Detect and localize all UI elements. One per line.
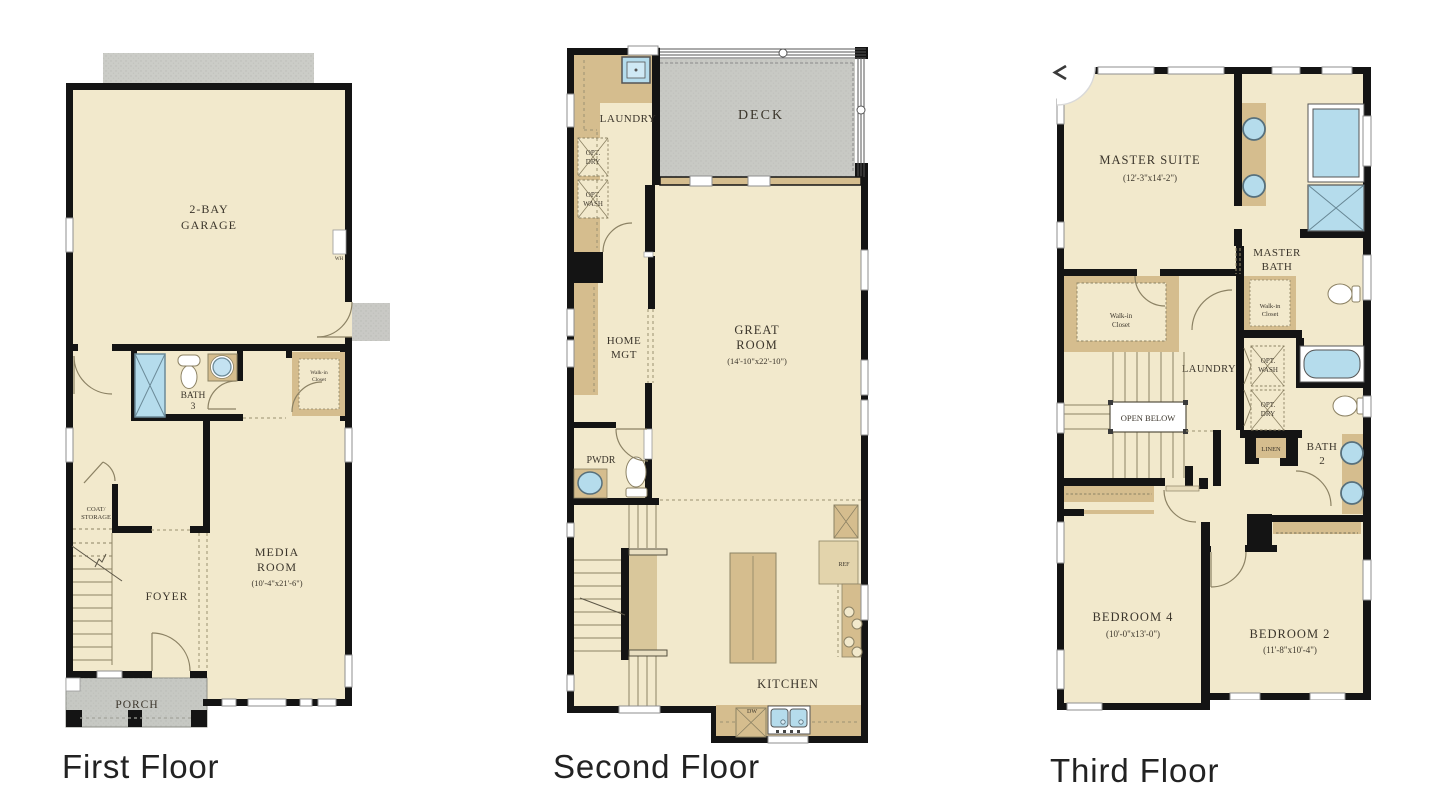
svg-text:BEDROOM 2: BEDROOM 2	[1250, 627, 1331, 641]
svg-text:MASTER SUITE: MASTER SUITE	[1099, 153, 1200, 167]
svg-text:GARAGE: GARAGE	[181, 218, 237, 232]
svg-text:DRY: DRY	[586, 158, 600, 166]
svg-text:LAUNDRY: LAUNDRY	[1182, 364, 1236, 375]
svg-text:STORAGE: STORAGE	[81, 514, 111, 521]
svg-text:(10'-0"x13'-0"): (10'-0"x13'-0")	[1106, 629, 1160, 639]
svg-text:OPT.: OPT.	[586, 149, 601, 157]
svg-text:BATH: BATH	[1262, 261, 1293, 273]
svg-text:2: 2	[1319, 455, 1325, 467]
svg-text:DRY: DRY	[1261, 410, 1275, 418]
svg-text:(14'-10"x22'-10"): (14'-10"x22'-10")	[727, 356, 787, 366]
svg-text:Third Floor: Third Floor	[1050, 752, 1219, 789]
svg-text:Closet: Closet	[1262, 311, 1279, 318]
svg-text:LAUNDRY: LAUNDRY	[600, 113, 657, 125]
svg-text:WH: WH	[335, 257, 344, 262]
svg-text:HOME: HOME	[607, 335, 641, 347]
svg-text:BATH: BATH	[1307, 441, 1338, 453]
svg-text:3: 3	[191, 402, 196, 412]
svg-text:REF: REF	[838, 562, 850, 568]
svg-text:COAT/: COAT/	[87, 506, 106, 513]
svg-text:ROOM: ROOM	[257, 560, 297, 574]
svg-text:OPEN BELOW: OPEN BELOW	[1121, 413, 1176, 423]
svg-text:MGT: MGT	[611, 349, 637, 361]
svg-text:OPT.: OPT.	[586, 191, 601, 199]
svg-text:Walk-in: Walk-in	[1110, 312, 1133, 320]
svg-text:ROOM: ROOM	[736, 338, 778, 352]
svg-text:Closet: Closet	[1112, 321, 1130, 329]
svg-text:(10'-4"x21'-6"): (10'-4"x21'-6")	[251, 578, 302, 588]
svg-text:PWDR: PWDR	[587, 455, 616, 466]
svg-text:BEDROOM 4: BEDROOM 4	[1093, 610, 1174, 624]
svg-text:DECK: DECK	[738, 108, 784, 123]
svg-text:(11'-8"x10'-4"): (11'-8"x10'-4")	[1263, 645, 1317, 655]
svg-text:LINEN: LINEN	[1261, 446, 1281, 453]
svg-text:FOYER: FOYER	[146, 591, 189, 603]
svg-text:WASH: WASH	[583, 200, 603, 208]
svg-text:OPT.: OPT.	[1261, 357, 1276, 365]
svg-text:DW: DW	[747, 709, 757, 715]
svg-text:WASH: WASH	[1258, 366, 1278, 374]
svg-text:(12'-3"x14'-2"): (12'-3"x14'-2")	[1123, 173, 1177, 183]
svg-text:MASTER: MASTER	[1253, 247, 1301, 259]
svg-text:Walk-in: Walk-in	[310, 370, 328, 376]
svg-text:OPT.: OPT.	[1261, 401, 1276, 409]
svg-text:KITCHEN: KITCHEN	[757, 677, 819, 691]
svg-text:First Floor: First Floor	[62, 748, 219, 785]
svg-text:GREAT: GREAT	[734, 323, 779, 337]
svg-text:2-BAY: 2-BAY	[189, 202, 228, 216]
svg-text:Second Floor: Second Floor	[553, 748, 760, 785]
svg-text:PORCH: PORCH	[115, 699, 158, 711]
svg-text:Walk-in: Walk-in	[1260, 303, 1282, 310]
svg-text:BATH: BATH	[181, 391, 206, 401]
svg-text:MEDIA: MEDIA	[255, 545, 299, 559]
